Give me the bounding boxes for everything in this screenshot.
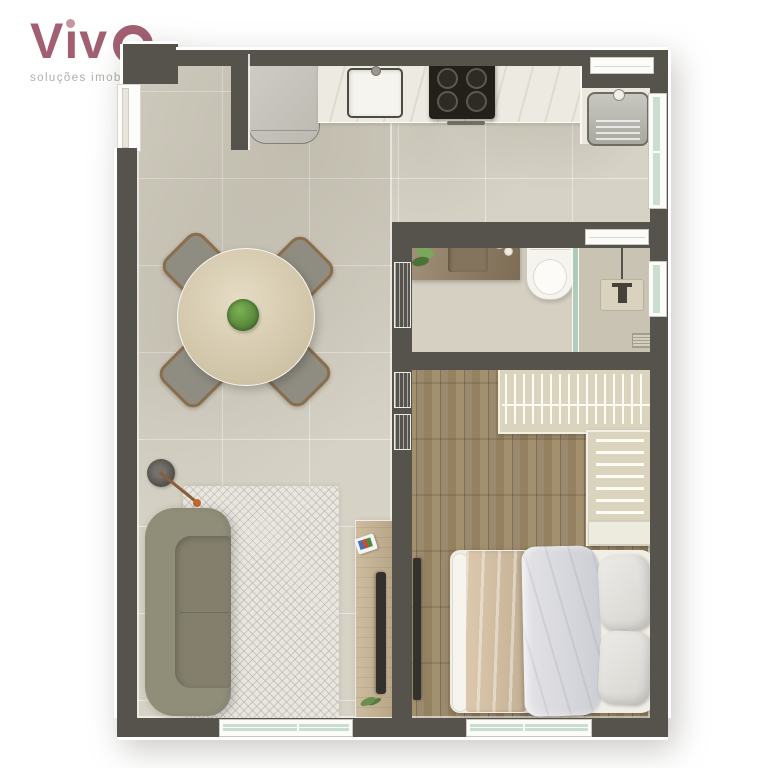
bed-blanket (466, 551, 528, 712)
kitchen-column (231, 54, 248, 150)
shower-side-window (648, 261, 667, 317)
sofa-seam (179, 612, 229, 613)
drawer-handle (447, 121, 485, 125)
cooktop (429, 61, 495, 119)
faucet-icon (371, 66, 381, 76)
tv-bedroom (413, 558, 421, 700)
apartment-floor-plan (0, 0, 768, 768)
service-side-window (648, 93, 667, 209)
burner-icon (466, 68, 487, 89)
vanity-deco (504, 247, 513, 256)
table-plant (227, 299, 259, 331)
tank-washboard (596, 116, 640, 140)
sofa (145, 508, 231, 716)
service-top-window (590, 57, 654, 74)
bathroom-transom-window (585, 229, 649, 245)
wardrobe-hangers (505, 374, 647, 424)
wall-corner-entry (123, 44, 178, 84)
shower-unit (600, 279, 644, 311)
hanger-rail (502, 404, 650, 406)
magazine-cover (358, 537, 373, 550)
wall-left (117, 148, 137, 718)
burner-icon (437, 68, 458, 89)
shower-pipe (621, 248, 623, 282)
floor-lamp-shade (193, 499, 201, 507)
bathroom-frosted-door (394, 262, 411, 328)
entry-door (117, 84, 141, 152)
laundry-tank (587, 92, 649, 146)
shower-glass-partition (572, 235, 579, 369)
kitchen-sink (347, 68, 403, 118)
floor-plan-page: Vıv soluções imobiliárias (0, 0, 768, 768)
living-bottom-window (219, 719, 353, 737)
wall-bathroom-bottom (392, 352, 668, 370)
burner-icon (466, 91, 487, 112)
tv-living (376, 572, 386, 694)
toilet-tank-line (530, 249, 570, 250)
bedroom-frosted-panel (394, 414, 411, 450)
refrigerator (248, 58, 320, 144)
bed-pillow (597, 630, 653, 707)
night-shelf (588, 521, 652, 545)
bedroom-bottom-window (466, 719, 592, 737)
bedroom-frosted-panel (394, 372, 411, 408)
bed-pillow (597, 554, 653, 633)
toilet-bowl (533, 259, 567, 295)
refrigerator-door-line (251, 130, 317, 131)
wardrobe-hanging-section (498, 368, 654, 434)
tank-faucet-icon (613, 89, 625, 101)
floor-drain (632, 333, 651, 348)
bed-duvet (521, 545, 603, 717)
burner-icon (437, 91, 458, 112)
